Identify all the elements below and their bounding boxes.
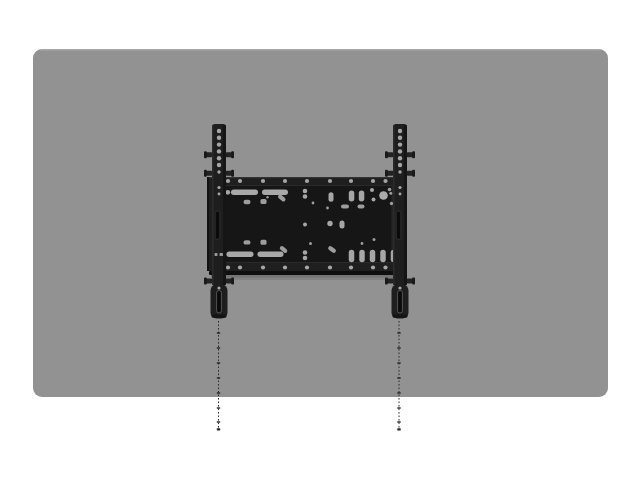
wall-mount-render	[0, 0, 640, 480]
product-image-tv-wall-mount	[0, 0, 640, 480]
wall-plate	[207, 177, 407, 280]
